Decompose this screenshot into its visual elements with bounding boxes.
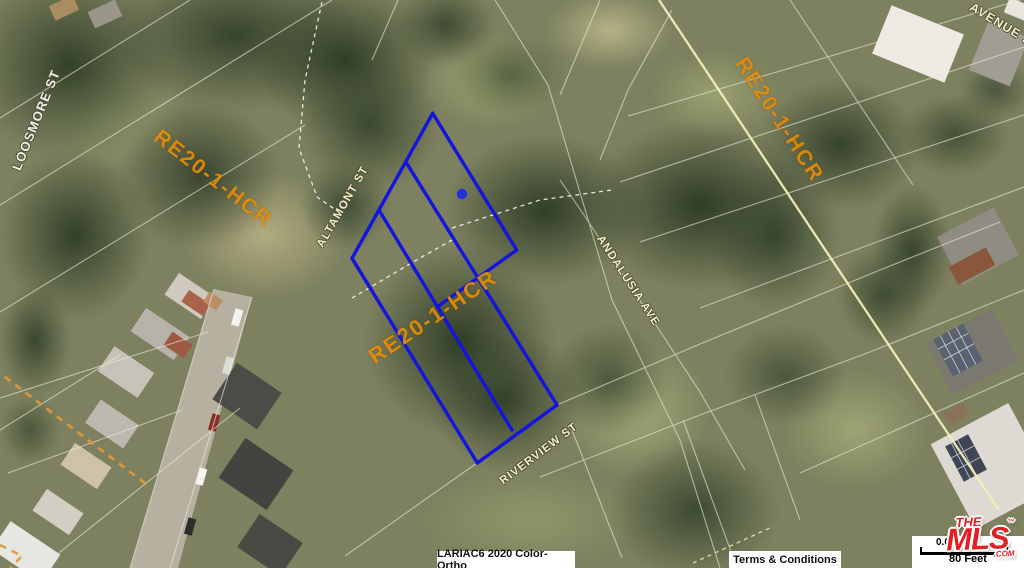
map-geometry-layer: [0, 0, 1024, 568]
mls-logo-com: .COM: [993, 549, 1014, 559]
satellite-map[interactable]: LOOSMORE ST ALTAMONT ST ANDALUSIA AVE RI…: [0, 0, 1024, 568]
mls-logo-tm: ™: [1007, 519, 1014, 526]
imagery-attribution: LARIAC6 2020 Color-Ortho: [437, 551, 575, 568]
property-marker-dot: [457, 189, 467, 199]
mls-logo[interactable]: THE MLS .COM ™: [945, 511, 1023, 564]
subject-parcel-outline: [352, 113, 557, 463]
houses-right-of-street: [212, 363, 302, 568]
terms-and-conditions-link[interactable]: Terms & Conditions: [729, 551, 841, 568]
parcel-grid-lines: [0, 0, 1024, 568]
